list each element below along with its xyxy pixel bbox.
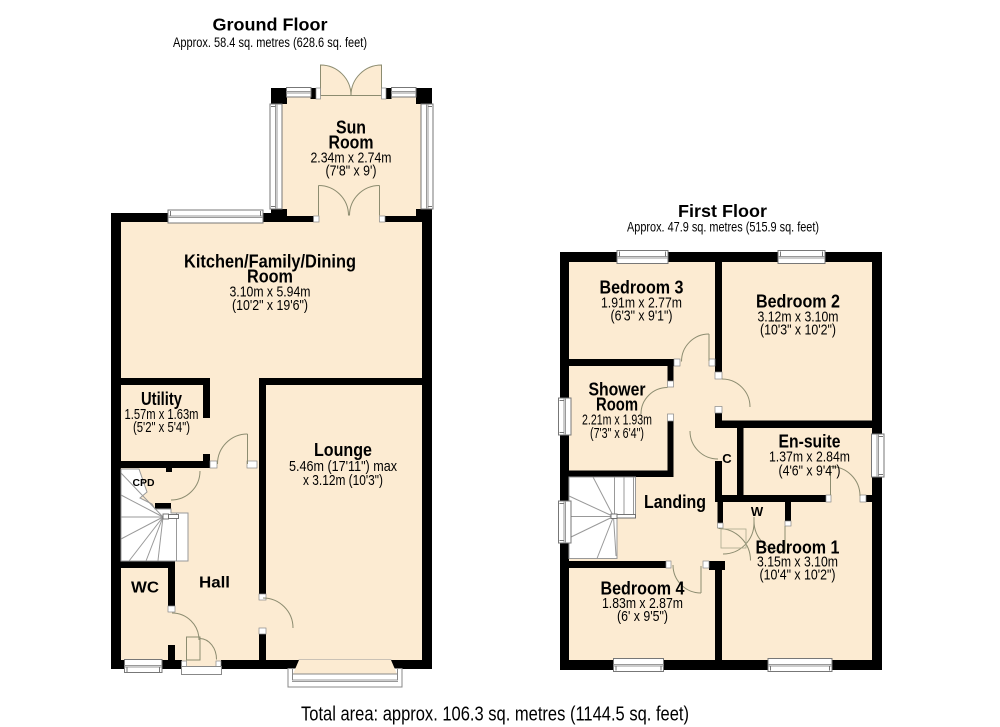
svg-text:(4'6" x 9'4"): (4'6" x 9'4") [779,463,841,480]
svg-text:Ground Floor: Ground Floor [213,15,328,35]
svg-text:WC: WC [131,580,159,597]
svg-text:CPD: CPD [133,477,155,489]
svg-text:(7'3" x 6'4"): (7'3" x 6'4") [590,425,644,442]
svg-text:x 3.12m (10'3"): x 3.12m (10'3") [303,472,383,489]
svg-text:(5'2" x 5'4"): (5'2" x 5'4") [133,419,190,436]
svg-text:(6' x 9'5"): (6' x 9'5") [617,608,668,625]
svg-text:Landing: Landing [644,492,706,512]
svg-text:(7'8" x 9'): (7'8" x 9') [326,163,377,180]
svg-text:Approx. 58.4 sq. metres (628.6: Approx. 58.4 sq. metres (628.6 sq. feet) [173,35,367,50]
svg-text:(6'3" x 9'1"): (6'3" x 9'1") [611,308,673,325]
svg-text:First Floor: First Floor [678,201,767,221]
svg-text:C: C [722,451,732,466]
svg-text:Hall: Hall [199,575,230,592]
svg-text:Approx. 47.9 sq. metres (515.9: Approx. 47.9 sq. metres (515.9 sq. feet) [627,220,819,235]
svg-text:(10'3" x 10'2"): (10'3" x 10'2") [760,322,836,339]
svg-text:Total area: approx. 106.3 sq.: Total area: approx. 106.3 sq. metres (11… [301,704,689,726]
svg-text:Lounge: Lounge [314,440,372,460]
svg-text:W: W [751,504,764,519]
svg-text:(10'2" x 19'6"): (10'2" x 19'6") [232,297,308,314]
svg-text:(10'4" x 10'2"): (10'4" x 10'2") [760,567,836,584]
